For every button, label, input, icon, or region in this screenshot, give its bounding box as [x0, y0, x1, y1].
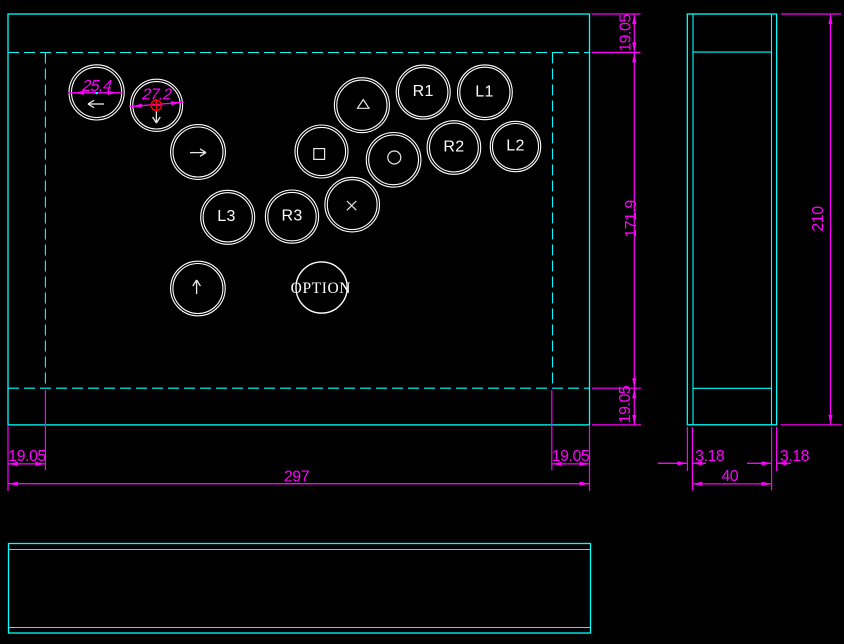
- svg-text:R3: R3: [281, 208, 302, 225]
- svg-text:19.05: 19.05: [618, 14, 635, 52]
- svg-text:L1: L1: [475, 84, 493, 101]
- svg-text:210: 210: [810, 206, 827, 232]
- svg-text:19.05: 19.05: [552, 448, 590, 465]
- svg-text:19.05: 19.05: [617, 385, 634, 423]
- svg-text:L3: L3: [217, 208, 235, 225]
- svg-text:3.18: 3.18: [780, 448, 810, 465]
- svg-text:171.9: 171.9: [623, 200, 640, 238]
- svg-text:L2: L2: [506, 137, 524, 154]
- svg-text:297: 297: [284, 469, 310, 486]
- svg-text:40: 40: [721, 468, 738, 485]
- svg-text:R2: R2: [443, 138, 464, 155]
- svg-text:OPTION: OPTION: [291, 280, 351, 297]
- svg-text:3.18: 3.18: [695, 448, 725, 465]
- svg-text:R1: R1: [413, 83, 434, 100]
- svg-text:19.05: 19.05: [8, 448, 46, 465]
